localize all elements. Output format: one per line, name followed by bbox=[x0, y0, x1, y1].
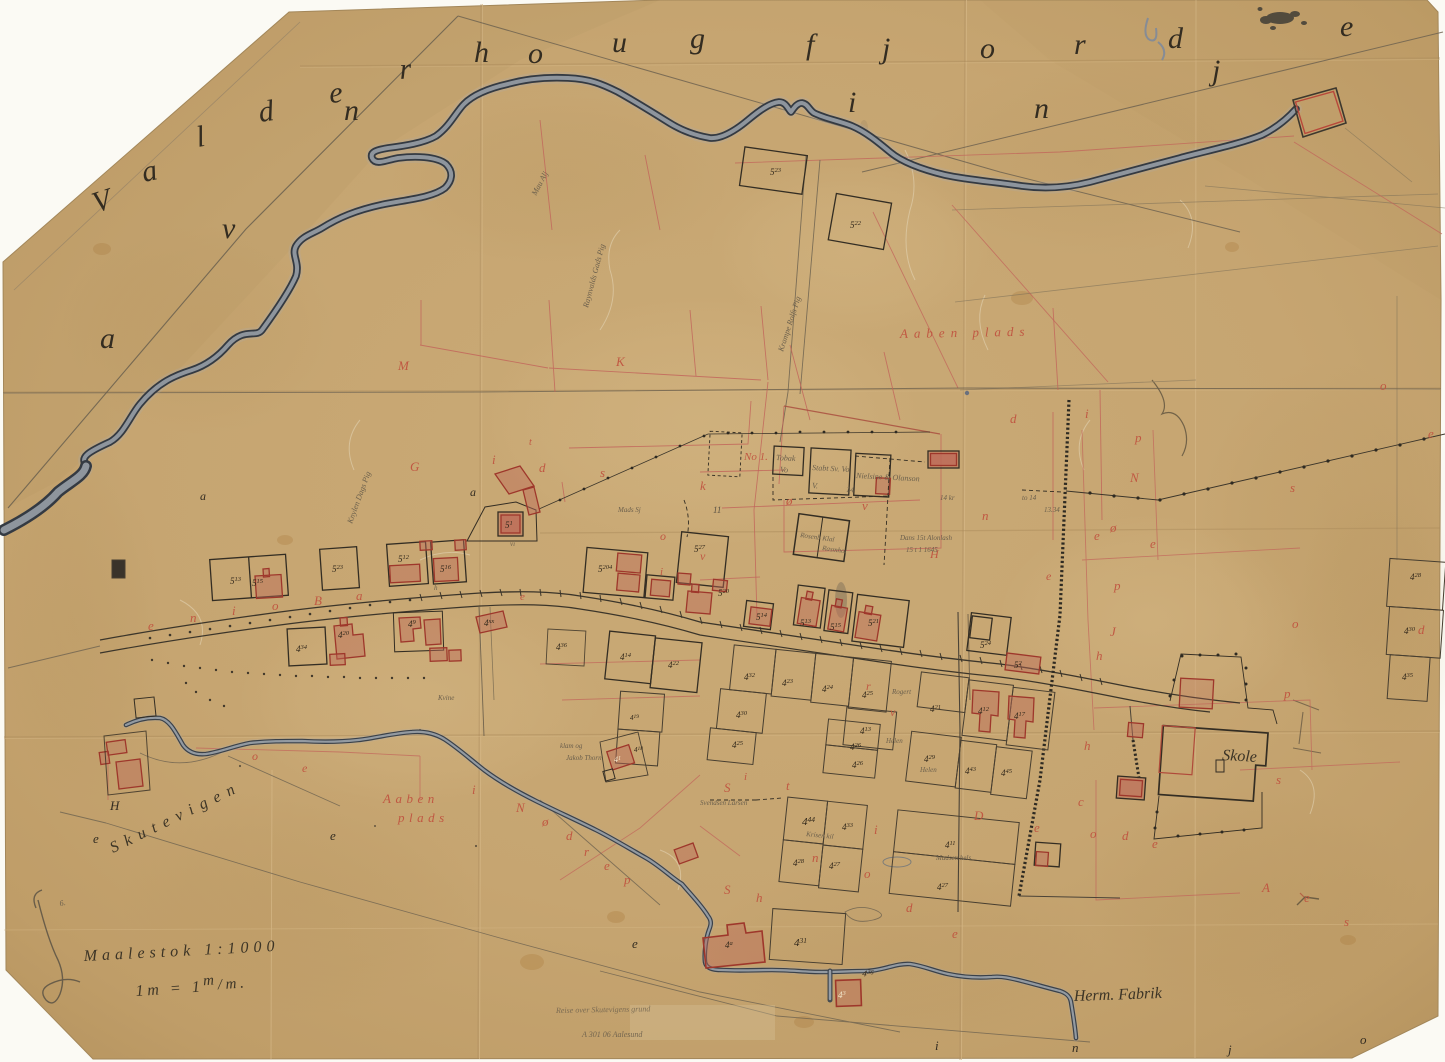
svg-text:p: p bbox=[1113, 578, 1121, 593]
svg-text:vi: vi bbox=[510, 540, 515, 548]
svg-text:A 301 06 Aalesund: A 301 06 Aalesund bbox=[581, 1030, 643, 1039]
svg-text:a: a bbox=[200, 489, 206, 503]
svg-text:n: n bbox=[812, 850, 819, 865]
svg-text:e: e bbox=[1150, 536, 1156, 551]
svg-text:r: r bbox=[1074, 28, 1086, 61]
svg-text:e: e bbox=[1340, 10, 1353, 43]
svg-text:k: k bbox=[700, 478, 706, 493]
svg-text:Rogert: Rogert bbox=[891, 688, 912, 696]
svg-text:i: i bbox=[492, 452, 496, 467]
svg-text:s: s bbox=[1276, 772, 1281, 787]
svg-text:h: h bbox=[474, 36, 489, 69]
svg-text:Aaben: Aaben bbox=[382, 791, 439, 806]
svg-text:v: v bbox=[222, 212, 236, 245]
svg-text:i: i bbox=[660, 566, 663, 578]
svg-text:Skole: Skole bbox=[1222, 747, 1257, 766]
svg-text:d: d bbox=[539, 460, 546, 475]
svg-text:N: N bbox=[515, 800, 526, 815]
svg-text:to 14: to 14 bbox=[1022, 494, 1037, 502]
svg-text:d: d bbox=[906, 900, 913, 915]
svg-text:o: o bbox=[1292, 616, 1299, 631]
svg-text:Aaben plads: Aaben plads bbox=[899, 324, 1031, 341]
svg-text:e: e bbox=[520, 591, 525, 603]
svg-text:15 t 1 1645: 15 t 1 1645 bbox=[906, 546, 938, 554]
svg-text:e: e bbox=[952, 926, 958, 941]
svg-text:ø: ø bbox=[1109, 520, 1117, 535]
svg-text:i: i bbox=[472, 782, 476, 797]
svg-text:d: d bbox=[1010, 411, 1017, 426]
svg-text:S: S bbox=[724, 780, 731, 795]
svg-text:n: n bbox=[190, 610, 197, 625]
svg-text:K: K bbox=[615, 354, 626, 369]
svg-text:e: e bbox=[604, 858, 610, 873]
svg-text:o: o bbox=[1090, 826, 1097, 841]
svg-text:v: v bbox=[700, 549, 706, 563]
svg-text:o: o bbox=[980, 32, 995, 65]
svg-text:u: u bbox=[612, 26, 627, 59]
svg-text:d: d bbox=[1122, 828, 1129, 843]
svg-text:n: n bbox=[982, 508, 989, 523]
svg-text:klam og: klam og bbox=[560, 742, 583, 750]
svg-text:e: e bbox=[632, 936, 638, 951]
svg-text:a: a bbox=[100, 322, 115, 355]
svg-text:h: h bbox=[756, 890, 763, 905]
svg-text:G: G bbox=[410, 459, 420, 474]
svg-text:i: i bbox=[744, 771, 747, 783]
svg-text:S: S bbox=[724, 882, 731, 897]
svg-text:e: e bbox=[1152, 836, 1158, 851]
svg-text:n: n bbox=[1034, 92, 1049, 125]
svg-text:ø: ø bbox=[541, 814, 549, 829]
svg-text:e: e bbox=[302, 761, 308, 775]
svg-text:plads: plads bbox=[397, 810, 449, 825]
svg-text:D: D bbox=[973, 808, 984, 823]
svg-text:M: M bbox=[397, 358, 410, 373]
svg-text:Jakob Thorn: Jakob Thorn bbox=[566, 754, 602, 762]
svg-text:n: n bbox=[1072, 1040, 1079, 1055]
svg-text:o: o bbox=[252, 749, 258, 763]
svg-text:13.34: 13.34 bbox=[1044, 506, 1060, 514]
svg-text:14 kr: 14 kr bbox=[940, 494, 955, 502]
svg-text:d: d bbox=[1418, 622, 1425, 637]
svg-text:e: e bbox=[1046, 569, 1052, 583]
svg-text:e: e bbox=[1304, 890, 1310, 905]
svg-text:i: i bbox=[1085, 406, 1089, 421]
svg-text:r: r bbox=[399, 52, 413, 86]
svg-text:s: s bbox=[1344, 914, 1349, 929]
svg-text:Dans 15t Alonlash: Dans 15t Alonlash bbox=[899, 534, 952, 542]
svg-text:e: e bbox=[330, 828, 336, 843]
svg-text:H: H bbox=[109, 798, 120, 813]
svg-text:o: o bbox=[1380, 378, 1387, 393]
svg-text:a: a bbox=[356, 588, 363, 603]
svg-text:e: e bbox=[148, 618, 154, 633]
svg-text:o: o bbox=[528, 37, 543, 70]
svg-text:o: o bbox=[272, 598, 279, 613]
svg-text:o: o bbox=[660, 529, 666, 543]
svg-text:Tobak: Tobak bbox=[776, 453, 796, 463]
svg-text:N: N bbox=[1129, 470, 1140, 485]
svg-text:e: e bbox=[1428, 426, 1434, 441]
svg-text:Helen: Helen bbox=[885, 737, 903, 745]
svg-text:o: o bbox=[1360, 1032, 1367, 1047]
svg-text:i: i bbox=[935, 1038, 939, 1053]
svg-text:e: e bbox=[1094, 528, 1100, 543]
svg-text:Helen: Helen bbox=[919, 766, 937, 774]
svg-text:h: h bbox=[434, 584, 438, 592]
svg-text:d: d bbox=[1168, 22, 1184, 55]
svg-text:p: p bbox=[1134, 430, 1142, 445]
svg-text:g: g bbox=[690, 22, 705, 55]
svg-text:Madsen hels: Madsen hels bbox=[935, 854, 971, 862]
svg-text:c: c bbox=[1078, 794, 1084, 809]
svg-text:V.: V. bbox=[812, 481, 818, 490]
svg-text:ø: ø bbox=[785, 493, 793, 508]
svg-text:p: p bbox=[623, 872, 631, 887]
svg-text:h: h bbox=[1084, 738, 1091, 753]
svg-text:Svendsen Larsen: Svendsen Larsen bbox=[700, 799, 748, 807]
svg-text:Mads Sj: Mads Sj bbox=[617, 506, 641, 514]
svg-text:No 1.: No 1. bbox=[743, 451, 768, 463]
svg-text:s: s bbox=[600, 465, 605, 480]
svg-text:Reise over Skutevigens grund: Reise over Skutevigens grund bbox=[555, 1004, 652, 1015]
svg-text:t: t bbox=[529, 437, 532, 448]
svg-text:Herm. Fabrik: Herm. Fabrik bbox=[1073, 985, 1163, 1005]
svg-text:Vo: Vo bbox=[780, 465, 788, 474]
svg-text:e: e bbox=[1034, 820, 1040, 835]
svg-text:B: B bbox=[314, 593, 322, 608]
svg-text:i: i bbox=[874, 822, 878, 837]
svg-text:i: i bbox=[232, 603, 236, 618]
svg-text:n: n bbox=[344, 94, 359, 127]
svg-text:e: e bbox=[93, 831, 99, 846]
svg-text:p: p bbox=[1283, 686, 1291, 701]
svg-text:14: 14 bbox=[846, 485, 854, 494]
svg-text:a: a bbox=[470, 485, 476, 499]
svg-text:d: d bbox=[566, 828, 573, 843]
svg-text:i: i bbox=[848, 86, 856, 119]
svg-text:o: o bbox=[864, 866, 871, 881]
svg-text:h: h bbox=[1096, 648, 1103, 663]
svg-text:v: v bbox=[862, 498, 868, 513]
svg-text:11: 11 bbox=[713, 505, 721, 515]
svg-text:s: s bbox=[1290, 480, 1295, 495]
svg-text:A: A bbox=[1261, 880, 1270, 895]
svg-text:t: t bbox=[786, 778, 790, 793]
svg-text:v: v bbox=[890, 705, 896, 719]
svg-text:Kvine: Kvine bbox=[437, 694, 454, 702]
